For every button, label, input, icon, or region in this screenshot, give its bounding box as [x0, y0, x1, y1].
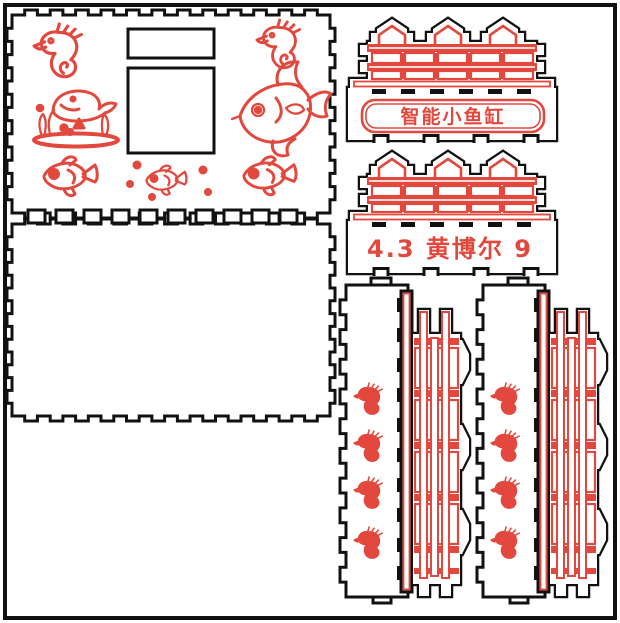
side-unit-1 [340, 278, 469, 603]
front-panel-decorated [7, 10, 335, 218]
display-cutout-small [128, 29, 214, 58]
side-unit-2 [477, 278, 606, 603]
roof-crown-back: 4.3 黄博尔 9 [348, 152, 556, 277]
display-cutout-large [128, 68, 214, 153]
base-panel-plain [7, 210, 335, 421]
signature-text: 4.3 黄博尔 9 [367, 235, 533, 263]
roof-crown-front: 智能小鱼缸 [348, 19, 556, 144]
laser-cut-design-canvas: 智能小鱼缸 4.3 黄博尔 9 [0, 0, 620, 623]
banner-title: 智能小鱼缸 [400, 105, 505, 128]
